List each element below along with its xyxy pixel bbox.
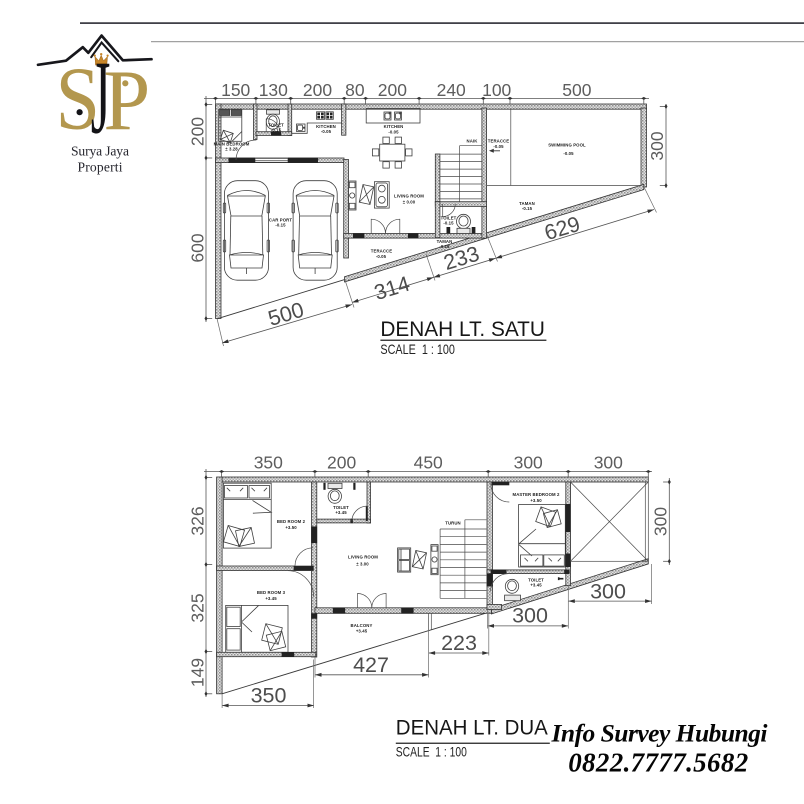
svg-text:200: 200 — [188, 117, 208, 146]
svg-text:300: 300 — [651, 507, 671, 536]
svg-text:+3.45: +3.45 — [530, 583, 542, 588]
svg-text:-0.15: -0.15 — [275, 223, 286, 228]
svg-text:-0.15: -0.15 — [522, 206, 533, 211]
svg-text:-0.05: -0.05 — [563, 151, 574, 156]
svg-text:± 0.00: ± 0.00 — [403, 200, 416, 205]
svg-text:± 3.28: ± 3.28 — [225, 146, 238, 151]
svg-text:-0.15: -0.15 — [271, 128, 282, 133]
svg-text:SCALE 1 : 100: SCALE 1 : 100 — [380, 342, 455, 357]
svg-text:SWIMMING POOL: SWIMMING POOL — [548, 142, 586, 147]
svg-text:326: 326 — [188, 506, 208, 535]
svg-text:200: 200 — [327, 453, 356, 473]
svg-text:LIVING ROOM: LIVING ROOM — [394, 194, 424, 199]
svg-text:BED ROOM 3: BED ROOM 3 — [257, 590, 286, 595]
svg-text:DENAH LT. DUA: DENAH LT. DUA — [396, 716, 549, 740]
svg-text:300: 300 — [590, 580, 626, 604]
svg-text:Info Survey Hubungi: Info Survey Hubungi — [551, 719, 768, 748]
svg-text:300: 300 — [647, 131, 667, 160]
svg-text:600: 600 — [188, 233, 208, 262]
svg-text:SCALE 1 : 100: SCALE 1 : 100 — [396, 745, 467, 760]
svg-text:427: 427 — [353, 653, 389, 677]
svg-text:80: 80 — [345, 80, 365, 100]
svg-text:+3.45: +3.45 — [356, 628, 368, 633]
svg-text:450: 450 — [414, 453, 443, 473]
svg-text:300: 300 — [514, 453, 543, 473]
svg-text:-0.05: -0.05 — [388, 129, 399, 134]
svg-text:+3.50: +3.50 — [530, 498, 542, 503]
svg-text:TURUN: TURUN — [445, 521, 461, 526]
svg-text:149: 149 — [188, 658, 208, 687]
svg-text:-0.05: -0.05 — [376, 254, 387, 259]
svg-text:200: 200 — [378, 80, 407, 100]
svg-text:± 3.00: ± 3.00 — [356, 562, 369, 567]
svg-text:130: 130 — [259, 80, 288, 100]
svg-text:325: 325 — [188, 593, 208, 622]
svg-text:BED ROOM 2: BED ROOM 2 — [277, 519, 306, 524]
svg-text:+3.45: +3.45 — [335, 510, 347, 515]
svg-text:350: 350 — [254, 453, 283, 473]
svg-text:Surya Jaya: Surya Jaya — [71, 144, 129, 159]
svg-text:Properti: Properti — [78, 160, 123, 175]
svg-text:300: 300 — [594, 453, 623, 473]
svg-text:MASTER BEDROOM 2: MASTER BEDROOM 2 — [513, 492, 560, 497]
svg-text:DENAH LT. SATU: DENAH LT. SATU — [380, 317, 545, 341]
svg-text:240: 240 — [437, 80, 466, 100]
svg-text:300: 300 — [512, 604, 548, 628]
svg-text:+3.45: +3.45 — [265, 596, 277, 601]
svg-text:100: 100 — [482, 80, 511, 100]
svg-text:350: 350 — [251, 684, 287, 708]
svg-text:-0.05: -0.05 — [321, 129, 332, 134]
svg-text:+3.50: +3.50 — [285, 525, 297, 530]
svg-text:223: 223 — [441, 631, 477, 655]
svg-text:-0.18: -0.18 — [439, 244, 450, 249]
svg-text:-0.05: -0.05 — [493, 144, 504, 149]
svg-text:TERACCE: TERACCE — [371, 249, 393, 254]
svg-text:-0.15: -0.15 — [443, 221, 454, 226]
svg-text:500: 500 — [562, 80, 591, 100]
svg-text:LIVING ROOM: LIVING ROOM — [348, 555, 378, 560]
svg-text:J: J — [91, 39, 111, 155]
svg-text:150: 150 — [221, 80, 250, 100]
svg-text:0822.7777.5682: 0822.7777.5682 — [568, 748, 748, 778]
svg-text:NAIK: NAIK — [467, 139, 479, 144]
svg-text:200: 200 — [303, 80, 332, 100]
